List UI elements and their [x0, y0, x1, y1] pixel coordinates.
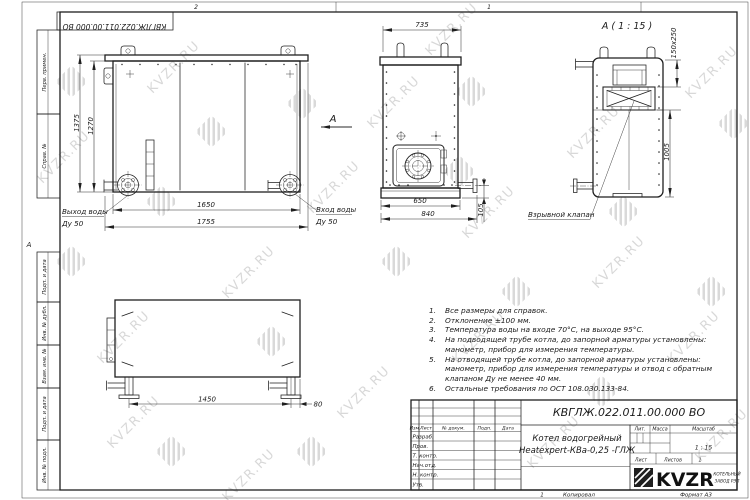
col-podp: Подп.: [478, 426, 492, 432]
row-razrab: Разраб.: [413, 435, 434, 441]
detail-view-linework: А ( 1 : 15 ): [570, 21, 663, 197]
rotated-doc-number: КВГЛЖ.022.011.00.000 ВО: [62, 22, 166, 31]
note-text: манометр, прибор для измерения температу…: [445, 364, 712, 374]
title-doc-number: КВГЛЖ.022.011.00.000 ВО: [553, 406, 706, 419]
note-text: Все размеры для справок.: [445, 306, 548, 316]
row-nkontr: Н. контр.: [413, 473, 439, 479]
bottom-strip: 1 Копировал Формат А3: [540, 493, 712, 499]
zone-number-2: 2: [194, 4, 198, 11]
front-view-linework: [104, 46, 308, 199]
dim-1755: 1755: [197, 218, 215, 226]
view-arrow-label: А: [329, 114, 337, 125]
sheets-label: Листов: [663, 458, 682, 464]
kvzr-logo-sub1: КОТЕЛЬНЫЙ: [713, 472, 741, 477]
product-name-line2: Heatexpert-КВа-0,25 -ГЛЖ: [519, 446, 636, 456]
col-data: Дата: [501, 426, 514, 432]
kvzr-logo: KVZR КОТЕЛЬНЫЙ ЗАВОД РЭП: [634, 468, 741, 491]
left-stamp-column: Перв. примен. Справ. № Подп. и дата Инв.…: [37, 30, 60, 490]
top-view-linework: [380, 43, 481, 198]
col-doc: № докум.: [441, 426, 465, 432]
stamp-vzam-inv: Взам. инв. №: [42, 348, 48, 383]
product-name-line1: Котел водогрейный: [532, 434, 622, 444]
mass-label: Масса: [652, 427, 667, 433]
zone-letter-a: А: [26, 241, 32, 249]
note-item: 3. Температура воды на входе 70°С, на вы…: [429, 325, 741, 335]
format-label: Формат А3: [680, 493, 712, 499]
dim-650: 650: [413, 197, 427, 205]
drawing-sheet: KVZR.RU KVZR.RU KVZR.RU KVZR.RU KVZR.RU …: [0, 0, 750, 500]
note-item: 5. На отводящей трубе котла, до запорной…: [429, 355, 741, 384]
row-nachotd: Нач.отд.: [413, 463, 437, 469]
note-text: клапаном Ду не менее 40 мм.: [445, 374, 712, 384]
dim-1270: 1270: [87, 117, 95, 135]
note-text: Отклонение ±100 мм.: [445, 316, 531, 326]
col-list: Лист: [419, 426, 432, 432]
sheet-frame: 2 1 А КВГЛЖ.022.011.00.000 ВО: [22, 2, 748, 498]
side-view-linework: [107, 300, 302, 399]
scale-label: Масштаб: [692, 427, 715, 433]
dim-80: 80: [314, 401, 323, 409]
dim-1375: 1375: [73, 114, 81, 132]
dim-840: 840: [421, 210, 435, 218]
lit-label: Лит.: [633, 427, 645, 433]
kvzr-logo-text: KVZR: [656, 469, 714, 491]
note-text: Температура воды на входе 70°С, на выход…: [445, 325, 644, 335]
top-view-dimensions: 735 650 840 105 Взрывной клапан: [381, 21, 634, 223]
sheet-label: Лист: [634, 458, 647, 464]
stamp-inv-podl: Инв. № подл.: [42, 447, 48, 483]
detail-view-dimensions: 150x250 1005: [657, 27, 681, 197]
bottom-strip-number: 1: [540, 493, 544, 499]
stamp-perv-primen: Перв. примен.: [42, 53, 48, 92]
col-izm: Изм.: [410, 426, 421, 432]
dim-1650: 1650: [197, 201, 215, 209]
drawing-linework: 2 1 А КВГЛЖ.022.011.00.000 ВО Перв. прим…: [0, 0, 750, 500]
note-item: 1. Все размеры для справок.: [429, 306, 741, 316]
scale-value: 1 : 15: [695, 445, 712, 452]
label-explosion-valve: Взрывной клапан: [528, 210, 595, 219]
dim-105: 105: [477, 203, 485, 217]
stamp-podp-data-2: Подп. и дата: [42, 396, 48, 431]
note-text: Остальные требования по ОСТ 108.030.133-…: [445, 384, 629, 394]
detail-view-title: А ( 1 : 15 ): [601, 21, 652, 32]
note-text: На подводящей трубе котла, до запорной а…: [445, 335, 706, 345]
note-item: 6. Остальные требования по ОСТ 108.030.1…: [429, 384, 741, 394]
dim-1005: 1005: [663, 143, 671, 161]
zone-number-1: 1: [487, 4, 491, 11]
note-item: 4. На подводящей трубе котла, до запорно…: [429, 335, 741, 354]
dim-150x250: 150x250: [670, 27, 678, 58]
sheets-value: 1: [698, 458, 701, 464]
label-water-inlet-size: Ду 50: [315, 217, 338, 226]
technical-notes: 1. Все размеры для справок. 2. Отклонени…: [429, 306, 741, 393]
stamp-podp-data-1: Подп. и дата: [42, 259, 48, 294]
note-text: На отводящей трубе котла, до запорной ар…: [445, 355, 712, 365]
note-text: манометр, прибор для измерения температу…: [445, 345, 706, 355]
stamp-sprav-no: Справ. №: [42, 143, 48, 168]
front-view-dimensions: 1375 1270 1650 1755 Выход воды Ду 50 Вхо…: [61, 55, 356, 231]
stamp-inv-dubl: Инв. № дубл.: [42, 305, 48, 341]
dim-1450: 1450: [198, 396, 216, 404]
note-number: 1.: [429, 306, 445, 316]
label-water-outlet-size: Ду 50: [61, 219, 84, 228]
label-water-outlet: Выход воды: [62, 207, 108, 216]
row-utv: Утв.: [413, 483, 424, 489]
note-number: 3.: [429, 325, 445, 335]
note-number: 5.: [429, 355, 445, 384]
row-tkontr: Т. контр.: [413, 454, 438, 460]
dim-735: 735: [415, 21, 429, 29]
note-number: 6.: [429, 384, 445, 394]
kvzr-logo-sub2: ЗАВОД РЭП: [715, 479, 741, 484]
note-number: 4.: [429, 335, 445, 354]
title-block: Изм. Лист № докум. Подп. Дата Разраб. Пр…: [410, 400, 742, 491]
row-prov: Пров.: [413, 444, 429, 450]
side-view-dimensions: 1450 80: [129, 379, 323, 409]
note-number: 2.: [429, 316, 445, 326]
copied-label: Копировал: [563, 493, 595, 499]
label-water-inlet: Вход воды: [316, 205, 356, 214]
note-item: 2. Отклонение ±100 мм.: [429, 316, 741, 326]
